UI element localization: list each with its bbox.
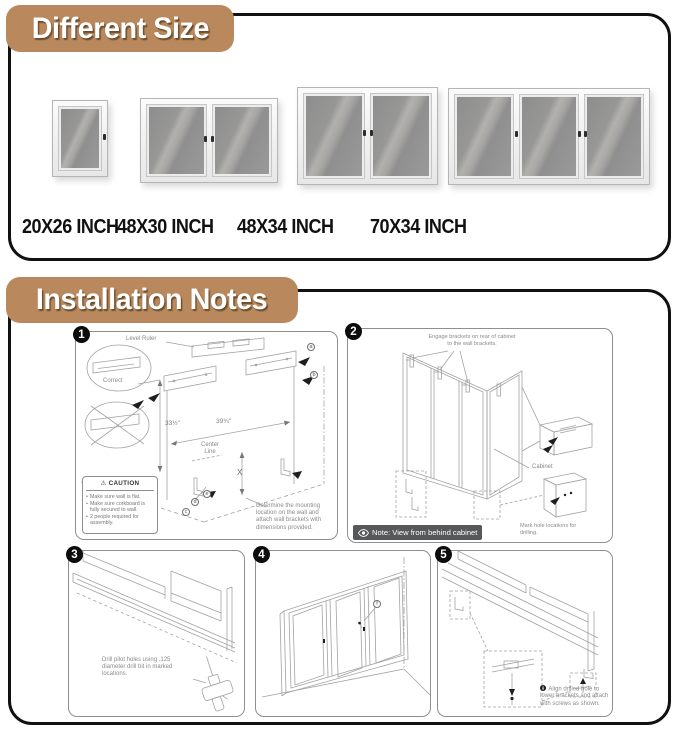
lock-icon [370, 130, 373, 136]
board-door [303, 93, 365, 179]
board-door [370, 93, 432, 179]
drill-pilot-holes-diagram [69, 551, 245, 717]
board-door [146, 104, 207, 177]
different-size-banner: Different Size [6, 5, 234, 52]
cork-surface [457, 97, 511, 176]
board-70x34 [448, 88, 650, 185]
board-door [454, 94, 514, 179]
view-note-badge: Note: View from behind cabinet [353, 525, 482, 540]
x-dimension: X [237, 468, 242, 477]
different-size-title: Different Size [31, 12, 208, 46]
installation-notes-title: Installation Notes [36, 283, 267, 317]
cork-surface [149, 107, 204, 174]
cork-surface [306, 96, 362, 176]
step-1-badge: 1 [73, 326, 90, 343]
size-label-48x30: 48X30 INCH [117, 216, 214, 239]
cork-surface [587, 97, 641, 176]
callout-letter-a: a [307, 343, 315, 351]
board-48x34 [297, 87, 438, 185]
cork-surface [61, 109, 99, 168]
size-label-70x34: 70X34 INCH [370, 216, 467, 239]
align-note: g Align drilled hole to lower brackets a… [540, 685, 612, 708]
cork-surface [522, 97, 576, 176]
callout-letter-b: b [310, 371, 318, 379]
lock-icon [584, 131, 587, 137]
caution-list: Make sure wall is flat. Make sure corkbo… [86, 494, 154, 527]
lock-icon [211, 136, 214, 142]
drill-note: Drill pilot holes using .125 diameter dr… [102, 657, 194, 679]
step-3-badge: 3 [66, 546, 83, 563]
lock-icon [363, 130, 366, 136]
product-infographic: Different Size 20X26 INCH 48X30 INCH 48X… [0, 0, 679, 731]
installation-notes-banner: Installation Notes [6, 277, 298, 323]
step-4-badge: 4 [253, 546, 270, 563]
board-20x26 [52, 100, 108, 177]
board-door [212, 104, 273, 177]
caution-title-text: CAUTION [109, 480, 140, 487]
level-ruler-label: Level Ruler [126, 336, 156, 343]
center-line-label: Center Line [197, 442, 223, 456]
cork-surface [215, 107, 270, 174]
engage-brackets-note: Engage brackets on rear of cabinet to th… [426, 334, 518, 347]
callout-letter-f: f [373, 600, 381, 608]
caution-box: ⚠ CAUTION Make sure wall is flat. Make s… [82, 476, 158, 534]
step-3-box: Drill pilot holes using .125 diameter dr… [68, 550, 245, 717]
size-label-48x34: 48X34 INCH [237, 216, 334, 239]
board-door [58, 106, 102, 171]
cabinet-label: Cabinet [532, 464, 553, 471]
step-4-box: f [255, 550, 431, 717]
height-dimension: 33½" [165, 420, 180, 427]
caution-item: Make sure wall is flat. [86, 494, 154, 501]
cork-surface [373, 96, 429, 176]
step-1-box: Level Ruler Correct 39¾" 33½" Center Lin… [75, 331, 338, 540]
callout-letter-e: e [203, 490, 211, 498]
lock-icon [578, 131, 581, 137]
caution-item: Make sure corkboard is fully secured to … [86, 501, 154, 514]
callout-letter-d: d [191, 498, 199, 506]
warning-icon: ⚠ [101, 480, 107, 487]
eye-icon [358, 529, 369, 537]
step-2-badge: 2 [345, 323, 362, 340]
board-door [584, 94, 644, 179]
board-door [519, 94, 579, 179]
mark-holes-note: Mark hole locations for drilling. [520, 523, 582, 536]
mounting-note: Determine the mounting location on the w… [256, 503, 336, 532]
callout-letter-c: c [182, 508, 190, 516]
lock-icon [103, 134, 106, 140]
lock-icon [204, 136, 207, 142]
view-note-text: Note: View from behind cabinet [372, 528, 477, 537]
callout-letter-g: g [540, 685, 546, 691]
caution-item: 2 people required for assembly. [86, 514, 154, 527]
correct-label: Correct [103, 378, 123, 385]
size-label-20x26: 20X26 INCH [22, 216, 119, 239]
board-48x30 [140, 98, 278, 183]
step-5-box: g Align drilled hole to lower brackets a… [437, 550, 613, 717]
step-2-box: Engage brackets on rear of cabinet to th… [347, 328, 613, 543]
lock-icon [515, 131, 518, 137]
step-5-badge: 5 [435, 546, 452, 563]
caution-title: ⚠ CAUTION [86, 480, 154, 491]
align-note-text: Align drilled hole to lower brackets and… [540, 686, 608, 706]
mounted-cabinet-diagram [256, 551, 431, 717]
cabinet-rear-diagram [348, 329, 614, 544]
width-dimension: 39¾" [216, 418, 231, 425]
